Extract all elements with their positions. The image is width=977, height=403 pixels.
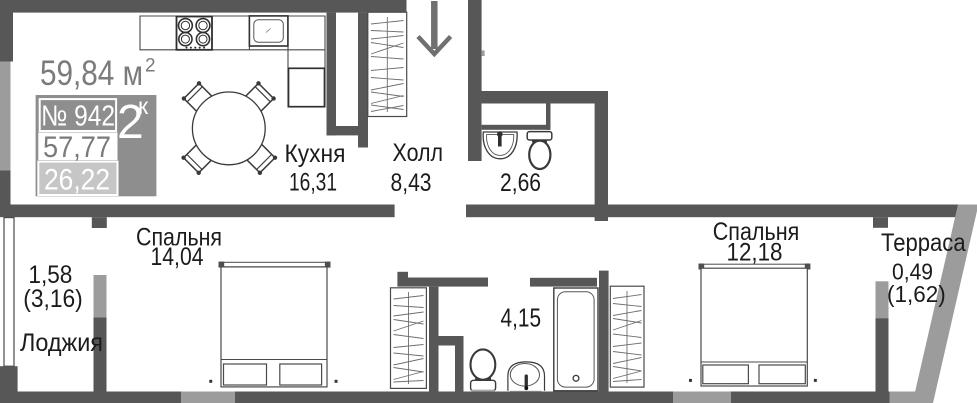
svg-text:14,04: 14,04 <box>151 243 204 271</box>
svg-text:59,84 м: 59,84 м <box>40 54 143 93</box>
svg-text:(3,16): (3,16) <box>23 285 83 313</box>
svg-text:Лоджия: Лоджия <box>20 329 103 357</box>
svg-text:2: 2 <box>145 55 156 76</box>
svg-text:57,77: 57,77 <box>43 131 111 164</box>
svg-text:16,31: 16,31 <box>289 169 337 197</box>
svg-text:Холл: Холл <box>393 139 444 167</box>
svg-text:Терраса: Терраса <box>881 229 966 257</box>
svg-text:№ 942: № 942 <box>41 101 115 133</box>
svg-text:2,66: 2,66 <box>500 169 541 197</box>
svg-text:12,18: 12,18 <box>727 239 783 267</box>
svg-text:4,15: 4,15 <box>501 303 542 333</box>
svg-text:26,22: 26,22 <box>44 164 110 197</box>
svg-text:8,43: 8,43 <box>391 169 432 197</box>
svg-text:к: к <box>138 93 149 119</box>
svg-text:Кухня: Кухня <box>285 140 346 168</box>
svg-text:(1,62): (1,62) <box>887 281 946 307</box>
